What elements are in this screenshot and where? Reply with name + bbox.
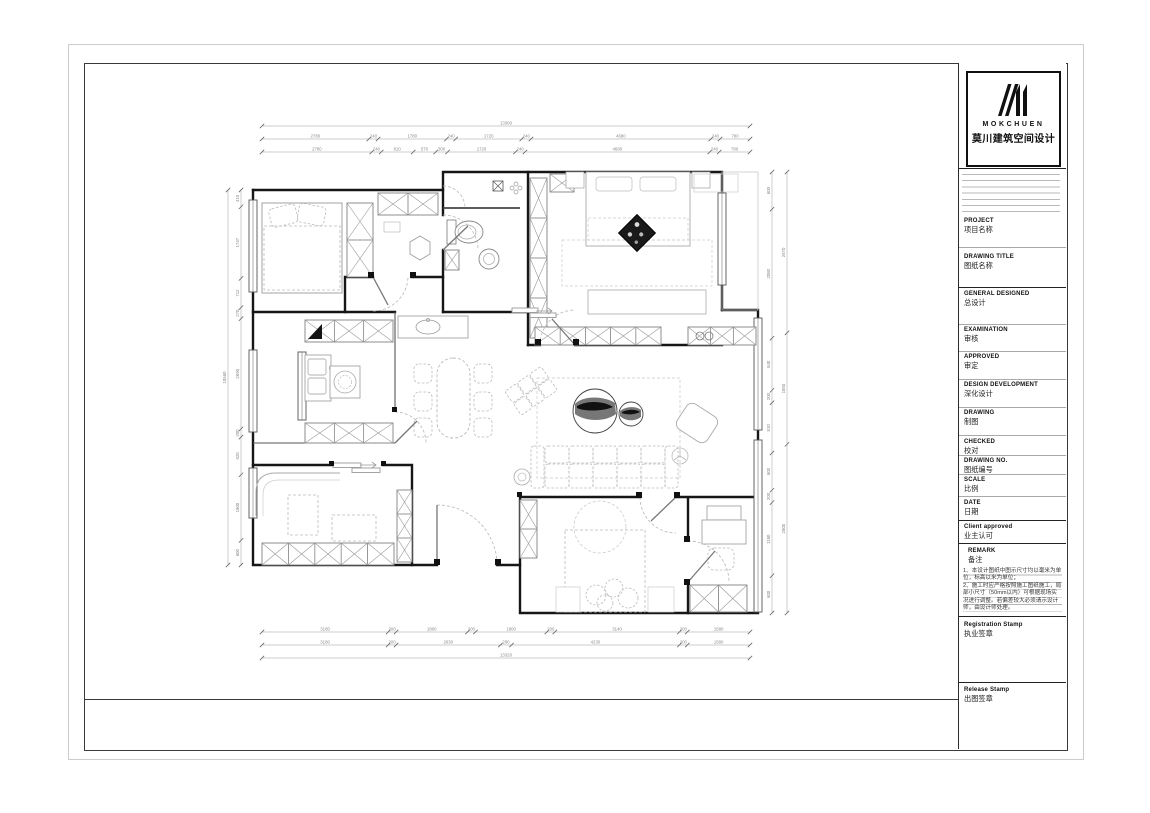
mokchuen-logo-icon — [992, 80, 1036, 118]
svg-text:810: 810 — [394, 146, 402, 151]
svg-text:600: 600 — [235, 549, 240, 557]
separator — [959, 435, 1066, 436]
svg-text:240: 240 — [523, 133, 531, 138]
ruled-lines — [962, 174, 1060, 216]
svg-text:1800: 1800 — [506, 626, 516, 631]
svg-text:1580: 1580 — [714, 626, 724, 631]
svg-text:1580: 1580 — [714, 639, 724, 644]
svg-text:200: 200 — [389, 626, 397, 631]
field-remark: REMARK备注 — [968, 548, 1065, 564]
svg-text:1180: 1180 — [766, 534, 771, 544]
field-drawing: DRAWING制图 — [964, 410, 1061, 426]
field-general-designed: GENERAL DESIGNED总设计 — [964, 291, 1061, 307]
coffee-table-small — [619, 402, 643, 426]
svg-text:600: 600 — [766, 467, 771, 475]
svg-text:2630: 2630 — [443, 639, 453, 644]
svg-text:410: 410 — [235, 194, 240, 202]
svg-text:3140: 3140 — [612, 626, 622, 631]
field-release-stamp: Release Stamp出图签章 — [964, 687, 1061, 703]
brand-name-cn: 莫川建筑空间设计 — [972, 130, 1055, 145]
svg-text:570: 570 — [421, 146, 429, 151]
living-room-furniture — [505, 366, 720, 488]
svg-text:200: 200 — [547, 626, 555, 631]
svg-text:13300: 13300 — [500, 120, 513, 125]
svg-text:1720: 1720 — [484, 133, 494, 138]
separator — [959, 474, 1066, 475]
field-drawing-no: DRAWING NO.图纸编号 — [964, 458, 1061, 474]
svg-text:240: 240 — [447, 133, 455, 138]
separator — [959, 379, 1066, 380]
separator — [959, 496, 1066, 497]
svg-text:600: 600 — [766, 186, 771, 194]
coffee-table-large — [573, 389, 617, 433]
svg-text:2780: 2780 — [311, 133, 321, 138]
remark-note-2: 2、施工时应严格按照施工图纸施工，局部小尺寸（50mm以内）可根据现场实况进行调… — [963, 583, 1062, 613]
remark-note-1: 1、本设计图纸中图示尺寸均以毫米为单位，标高以米为单位； — [963, 568, 1062, 583]
svg-text:2690: 2690 — [235, 368, 240, 378]
svg-text:240: 240 — [373, 146, 381, 151]
separator — [959, 168, 1066, 169]
svg-text:780: 780 — [731, 146, 739, 151]
svg-text:1747: 1747 — [235, 237, 240, 247]
drawing-sheet: 1330027802401780240172024046802407802780… — [0, 0, 1150, 813]
separator — [959, 520, 1066, 521]
separator — [959, 351, 1066, 352]
svg-text:3180: 3180 — [320, 626, 330, 631]
study-furniture — [256, 473, 376, 541]
svg-text:920: 920 — [235, 452, 240, 460]
separator — [959, 324, 1066, 325]
lower-bedroom-furniture — [556, 501, 674, 612]
svg-text:712: 712 — [235, 289, 240, 297]
svg-text:240: 240 — [517, 146, 525, 151]
separator — [959, 407, 1066, 408]
separator — [959, 616, 1066, 617]
svg-text:4680: 4680 — [613, 146, 623, 151]
svg-text:200: 200 — [766, 392, 771, 400]
field-client-approved: Client approved业主认可 — [964, 524, 1061, 540]
title-block: MOKCHUEN 莫川建筑空间设计 PROJECT项目名称 DRAWING TI… — [958, 63, 1066, 749]
field-checked: CHECKED校对 — [964, 439, 1061, 455]
brand-name: MOKCHUEN — [982, 121, 1044, 128]
separator — [959, 682, 1066, 683]
svg-text:200: 200 — [235, 429, 240, 437]
svg-text:3180: 3180 — [320, 639, 330, 644]
field-approved: APPROVED审定 — [964, 354, 1061, 370]
desk-room-furniture — [702, 506, 746, 570]
svg-text:4680: 4680 — [616, 133, 626, 138]
field-examination: EXAMINATION审核 — [964, 327, 1061, 343]
svg-text:780: 780 — [731, 133, 739, 138]
field-date: DATE日期 — [964, 500, 1061, 516]
field-project: PROJECT项目名称 — [964, 218, 1061, 234]
svg-text:300: 300 — [438, 146, 446, 151]
svg-text:840: 840 — [766, 360, 771, 368]
svg-text:200: 200 — [389, 639, 397, 644]
logo-box: MOKCHUEN 莫川建筑空间设计 — [966, 71, 1061, 167]
svg-text:240: 240 — [712, 133, 720, 138]
separator — [959, 287, 1066, 288]
svg-text:2080: 2080 — [766, 268, 771, 278]
field-scale: SCALE比例 — [964, 477, 1061, 493]
svg-text:4230: 4230 — [591, 639, 601, 644]
svg-text:13320: 13320 — [500, 652, 513, 657]
svg-text:200: 200 — [766, 492, 771, 500]
svg-text:240: 240 — [370, 133, 378, 138]
svg-text:810: 810 — [766, 424, 771, 432]
svg-text:10560: 10560 — [222, 371, 227, 384]
svg-text:2800: 2800 — [781, 523, 786, 533]
separator — [959, 455, 1066, 456]
svg-text:1600: 1600 — [235, 502, 240, 512]
svg-text:200: 200 — [680, 639, 688, 644]
separator — [959, 247, 1066, 248]
svg-text:280: 280 — [502, 639, 510, 644]
svg-text:240: 240 — [711, 146, 719, 151]
svg-text:270: 270 — [235, 309, 240, 317]
field-drawing-title: DRAWING TITLE图纸名称 — [964, 254, 1061, 270]
field-registration-stamp: Registration Stamp执业签章 — [964, 622, 1061, 638]
svg-text:1800: 1800 — [427, 626, 437, 631]
svg-text:1720: 1720 — [477, 146, 487, 151]
svg-text:200: 200 — [680, 626, 688, 631]
svg-text:2670: 2670 — [781, 247, 786, 257]
remark-notes: 1、本设计图纸中图示尺寸均以毫米为单位，标高以米为单位； 2、施工时应严格按照施… — [963, 568, 1062, 612]
field-design-development: DESIGN DEVELOPMENT深化设计 — [964, 382, 1061, 398]
svg-text:2780: 2780 — [312, 146, 322, 151]
svg-text:1850: 1850 — [781, 383, 786, 393]
svg-text:600: 600 — [766, 590, 771, 598]
separator — [959, 543, 1066, 544]
kitchen-furniture — [305, 355, 360, 401]
master-bedroom-furniture — [562, 172, 738, 314]
svg-text:200: 200 — [468, 626, 476, 631]
dining-furniture — [398, 316, 492, 438]
svg-text:1780: 1780 — [407, 133, 417, 138]
